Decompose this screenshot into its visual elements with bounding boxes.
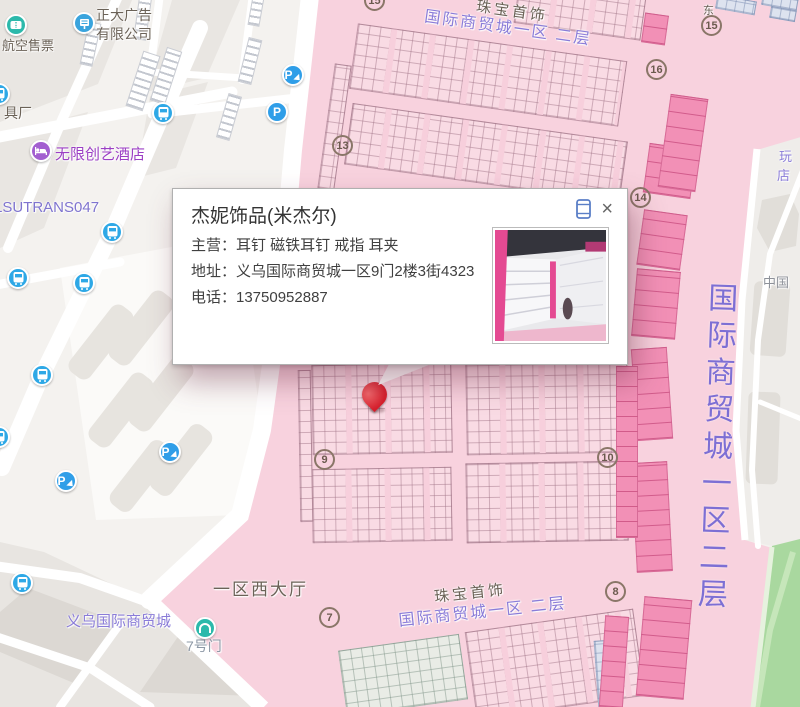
popup-address-line: 地址：义乌国际商贸城一区9门2楼3街4323 xyxy=(191,259,483,285)
stall-block xyxy=(311,467,452,543)
stall-strip xyxy=(631,268,681,340)
parking-icon[interactable]: P xyxy=(266,101,288,123)
gate-number-10: 10 xyxy=(597,447,618,468)
gate-door-icon[interactable] xyxy=(194,617,216,639)
area-label-market-sw: 义乌国际商贸城 xyxy=(66,610,171,631)
popup-actions: × xyxy=(576,199,613,219)
gate-number-16: 16 xyxy=(646,59,667,80)
bus-stop-icon[interactable] xyxy=(152,102,174,124)
poi-label-air-ticket[interactable]: 航空售票 xyxy=(2,35,54,54)
shop-photo-art xyxy=(495,230,606,341)
gate-number-7: 7 xyxy=(319,607,340,628)
area-label-west-hall: 一区西大厅 xyxy=(213,575,308,600)
popup-phone-line: 电话：13750952887 xyxy=(191,285,483,311)
gate-number-east-15: 15 xyxy=(701,15,722,36)
stall-strip xyxy=(641,12,669,45)
parking-glyph: P xyxy=(57,474,65,488)
bus-stop-icon[interactable] xyxy=(11,572,33,594)
shop-infowindow: 杰妮饰品(米杰尔) × 主营：耳钉 磁铁耳钉 戒指 耳夹 地址：义乌国际商贸城一… xyxy=(172,188,628,365)
shop-photo-thumbnail[interactable] xyxy=(492,227,609,344)
ticket-office-icon[interactable] xyxy=(5,14,27,36)
arrow-glyph xyxy=(170,450,179,459)
poi-label-toy-partial-2: 店 xyxy=(777,165,790,184)
gate-number-14: 14 xyxy=(630,187,651,208)
mobile-phone-icon[interactable] xyxy=(576,199,591,219)
ad-company-icon[interactable] xyxy=(73,12,95,34)
stall-block xyxy=(298,370,314,522)
poi-label-ad-company-line2[interactable]: 有限公司 xyxy=(96,24,152,44)
stall-strip xyxy=(616,366,638,538)
stall-strip xyxy=(636,209,687,271)
bus-stop-icon[interactable] xyxy=(7,267,29,289)
parking-arrow-icon[interactable]: P xyxy=(55,470,77,492)
bus-stop-icon[interactable] xyxy=(73,272,95,294)
parking-glyph: P xyxy=(161,445,169,459)
arrow-glyph xyxy=(66,479,75,488)
close-icon[interactable]: × xyxy=(601,201,613,217)
poi-label-hotel[interactable]: 无限创艺酒店 xyxy=(55,143,145,164)
gate-number-8: 8 xyxy=(605,581,626,602)
poi-label-route-code: LSUTRANS047 xyxy=(0,199,99,216)
poi-label-factory-partial: 具厂 xyxy=(4,103,32,123)
arrow-glyph xyxy=(293,73,302,82)
bus-stop-icon[interactable] xyxy=(31,364,53,386)
bus-stop-icon[interactable] xyxy=(101,221,123,243)
parking-glyph: P xyxy=(273,105,281,119)
popup-title: 杰妮饰品(米杰尔) xyxy=(191,201,337,228)
stall-block xyxy=(465,357,629,456)
parking-arrow-icon[interactable]: P xyxy=(282,64,304,86)
popup-business-line: 主营：耳钉 磁铁耳钉 戒指 耳夹 xyxy=(191,233,483,259)
parking-glyph: P xyxy=(284,68,292,82)
poi-label-gate7-door[interactable]: 7号门 xyxy=(186,636,222,656)
poi-label-toy-partial-1: 玩 xyxy=(779,146,792,165)
poi-label-china-partial: 中国 xyxy=(763,272,789,291)
gate-number-13: 13 xyxy=(332,135,353,156)
gate-number-9: 9 xyxy=(314,449,335,470)
parking-arrow-icon[interactable]: P xyxy=(159,441,181,463)
popup-details: 主营：耳钉 磁铁耳钉 戒指 耳夹 地址：义乌国际商贸城一区9门2楼3街4323 … xyxy=(191,233,483,311)
hotel-icon[interactable] xyxy=(30,140,52,162)
poi-label-ad-company-line1[interactable]: 正大广告 xyxy=(96,5,152,25)
stall-block xyxy=(465,461,628,544)
stall-strip xyxy=(636,596,693,700)
map-canvas[interactable]: 航空售票 正大广告 有限公司 具厂 无限创艺酒店 LSUTRANS047 义乌国… xyxy=(0,0,800,707)
